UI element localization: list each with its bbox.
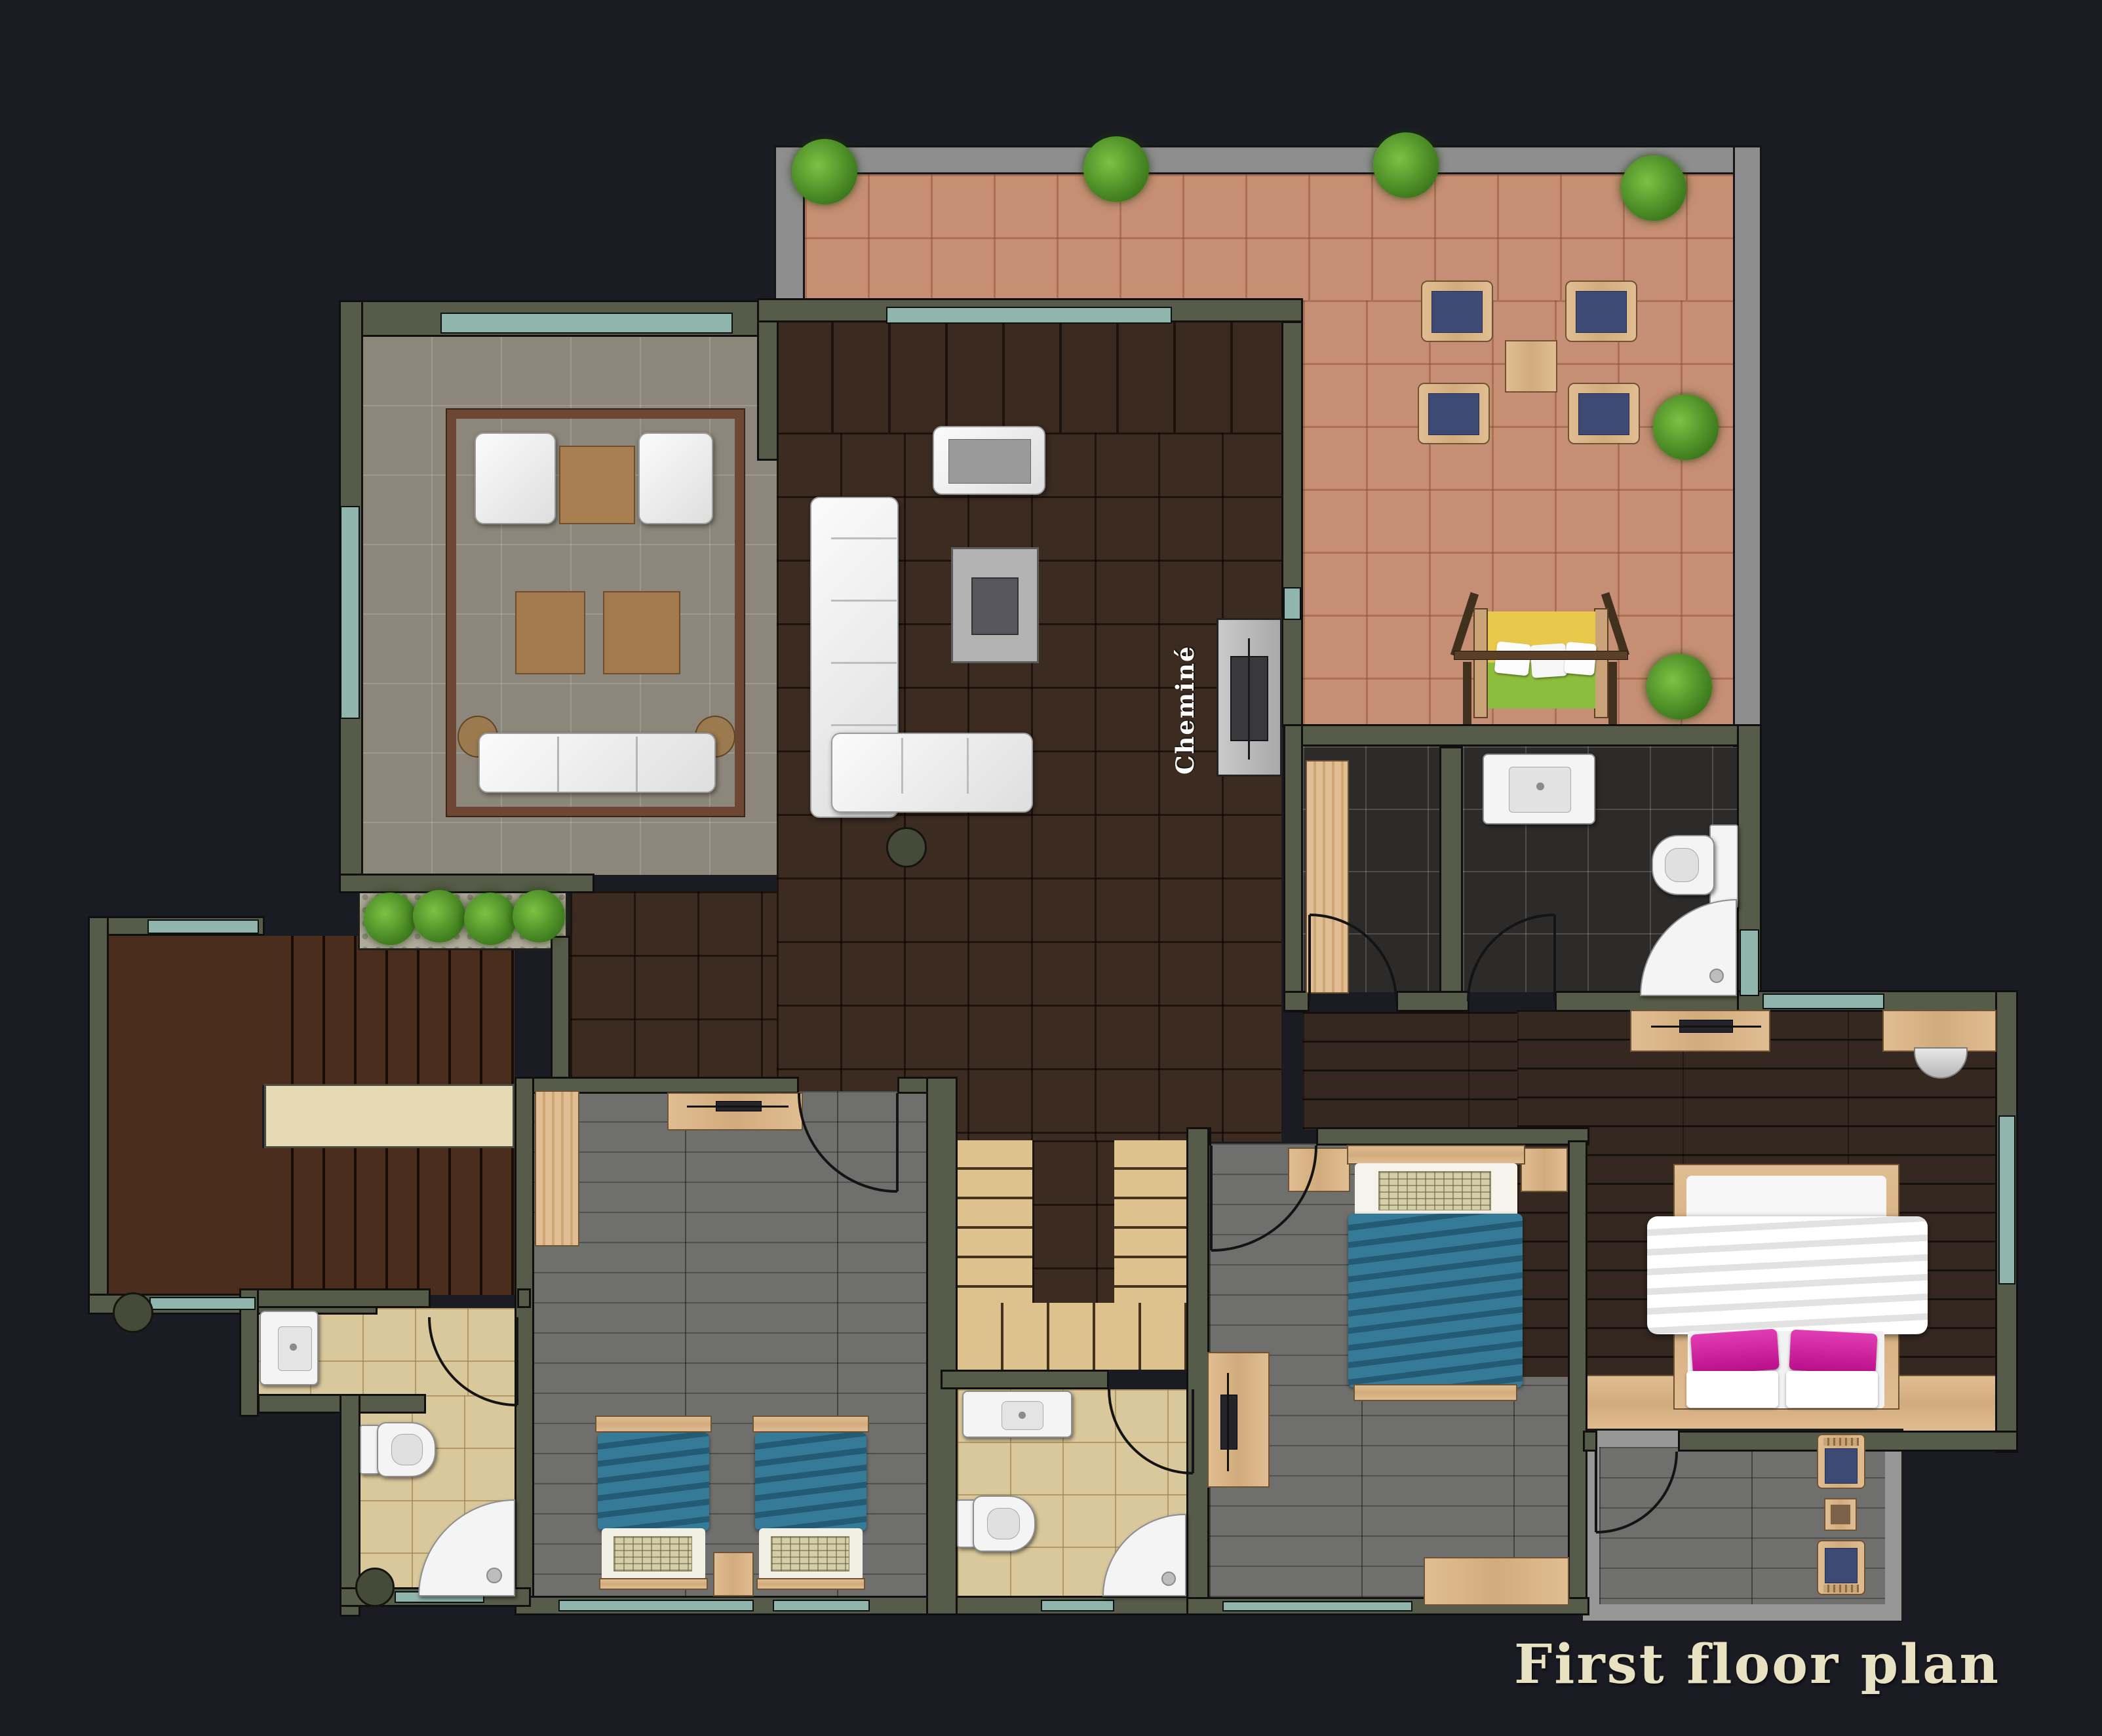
planter-plant: [413, 890, 465, 942]
toilet: [1652, 824, 1738, 911]
window: [340, 506, 360, 719]
window: [1740, 929, 1759, 996]
desk: [1207, 1352, 1270, 1488]
wall: [1396, 991, 1469, 1012]
page-title: First floor plan: [1514, 1633, 2025, 1696]
stair-flight-right: [1114, 1140, 1188, 1303]
wall: [339, 874, 594, 893]
stair-flight-left: [958, 1140, 1032, 1303]
coffee-table: [559, 446, 635, 524]
terrace-chair: [1421, 280, 1493, 342]
window: [1041, 1600, 1114, 1611]
corridor-floor: [1303, 1012, 1517, 1130]
wall: [1283, 724, 1762, 746]
shrub: [1621, 155, 1686, 221]
shrub: [792, 139, 857, 204]
wall: [1316, 1127, 1589, 1146]
wall: [239, 1288, 431, 1308]
living-sofa: [478, 733, 716, 793]
stair-landing: [264, 1084, 515, 1148]
wardrobe: [535, 1090, 579, 1246]
nightstand: [713, 1552, 754, 1596]
round-stool: [886, 827, 927, 868]
dresser: [1630, 1010, 1770, 1052]
porch-stairs-upper: [262, 936, 515, 1085]
window: [1998, 1115, 2015, 1284]
swing-bench: [1449, 587, 1632, 727]
double-bed: [1347, 1145, 1525, 1404]
vanity-sink: [962, 1391, 1072, 1438]
wall: [1283, 724, 1303, 1013]
dresser: [667, 1092, 803, 1130]
wall: [926, 1077, 958, 1615]
family-room-plank-band: [777, 322, 1281, 433]
terrace-rail-top: [774, 145, 1762, 174]
stair-flight-bottom: [958, 1303, 1188, 1370]
nightstand: [1521, 1148, 1568, 1192]
bathroom-sink: [260, 1311, 319, 1385]
wall: [1583, 1431, 1597, 1452]
shrub: [1083, 136, 1149, 202]
fireplace-label: Cheminé: [1171, 623, 1199, 775]
sectional-sofa-horizontal: [831, 733, 1033, 813]
window: [886, 307, 1172, 324]
single-bed: [752, 1416, 869, 1591]
fireplace: [1216, 618, 1282, 777]
shrub: [1653, 395, 1719, 460]
terrace-chair: [1418, 383, 1490, 444]
wall: [1283, 991, 1310, 1012]
planter-plant: [464, 893, 516, 945]
stair-void: [1032, 1140, 1114, 1303]
terrace-chair: [1568, 383, 1640, 444]
window: [773, 1600, 870, 1611]
master-bed: [1673, 1164, 1899, 1410]
porch-floor: [109, 936, 262, 1295]
planter-plant: [364, 893, 416, 945]
wall: [1186, 1127, 1209, 1615]
wall: [1568, 1140, 1587, 1615]
bathroom-sink: [1483, 754, 1595, 824]
wall: [757, 300, 779, 461]
wardrobe: [1306, 760, 1349, 993]
armchair: [638, 433, 713, 524]
shrub: [1646, 654, 1712, 720]
terrace-table: [1505, 340, 1557, 393]
wall: [515, 1077, 534, 1615]
dresser: [1424, 1557, 1569, 1606]
floor-plan-canvas: Cheminé: [0, 0, 2102, 1736]
wall: [517, 1288, 531, 1308]
window: [440, 313, 733, 334]
wall: [941, 1370, 1109, 1389]
window: [558, 1600, 754, 1611]
side-table: [515, 591, 585, 674]
single-bed: [595, 1416, 712, 1591]
porch-stairs-lower: [262, 1148, 515, 1295]
window: [1222, 1601, 1412, 1611]
window: [147, 919, 259, 934]
window: [1762, 993, 1884, 1009]
window: [149, 1297, 256, 1310]
wall: [88, 916, 109, 1315]
wall: [1439, 746, 1463, 995]
toilet: [360, 1422, 437, 1477]
tv-table: [951, 547, 1039, 663]
side-table: [603, 591, 680, 674]
toilet: [957, 1495, 1037, 1552]
wall: [1281, 321, 1303, 727]
window: [1283, 587, 1301, 620]
balcony-table: [1824, 1498, 1857, 1531]
balcony-chair: [1817, 1540, 1865, 1595]
terrace-rail-right: [1733, 145, 1762, 747]
shrub: [1373, 132, 1439, 198]
balcony-chair: [1817, 1434, 1865, 1489]
terrace-chair: [1565, 280, 1637, 342]
family-room-floor-ext: [570, 891, 777, 1083]
loveseat: [933, 426, 1045, 495]
round-planter: [355, 1568, 395, 1607]
planter-plant: [513, 890, 565, 942]
armchair: [475, 433, 556, 524]
nightstand: [1288, 1148, 1350, 1192]
dresser: [1882, 1010, 1996, 1052]
wall: [551, 936, 570, 1081]
porch-round-planter: [113, 1292, 153, 1333]
